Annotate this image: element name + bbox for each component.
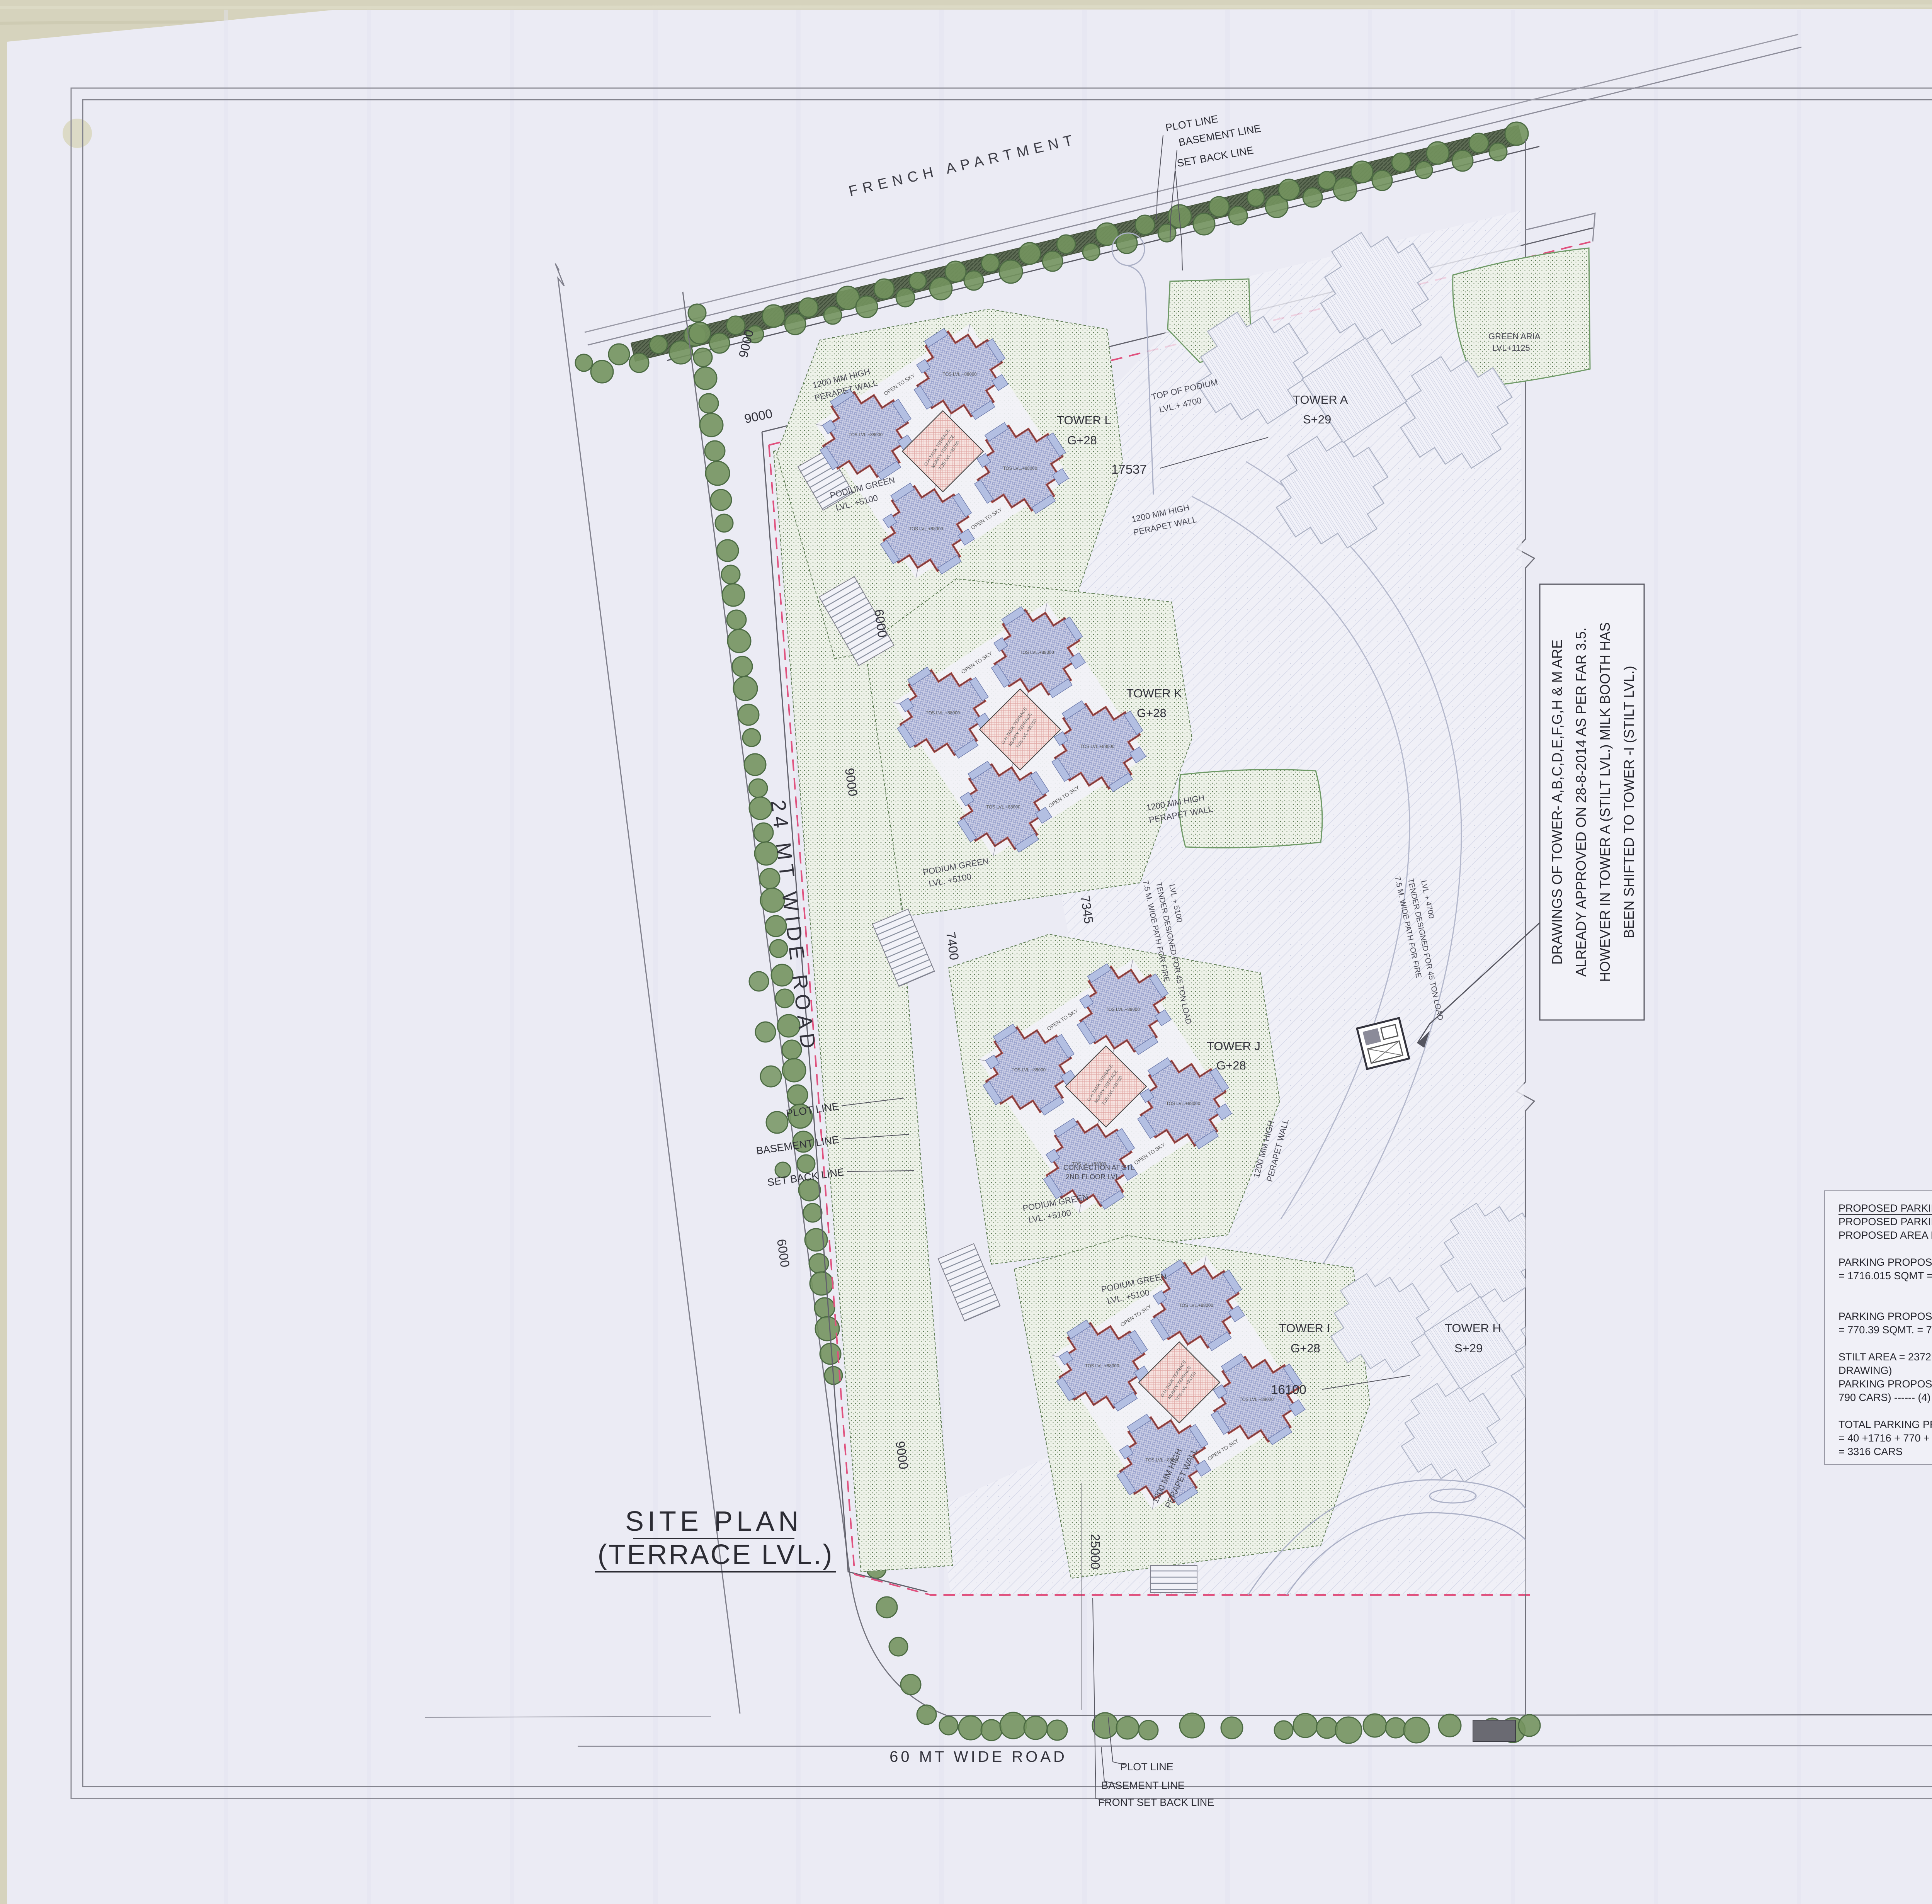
svg-text:TOS LVL.+88000: TOS LVL.+88000	[1080, 745, 1114, 749]
svg-text:ALREADY APPROVED ON 28-8-2014: ALREADY APPROVED ON 28-8-2014 AS PER FAR…	[1573, 627, 1589, 977]
svg-text:BEEN SHIFTED TO TOWER -I (STIL: BEEN SHIFTED TO TOWER -I (STILT LVL.)	[1621, 666, 1637, 938]
svg-text:PARKING PROPOSED IN SECON: PARKING PROPOSED IN SECOND BASEMENT = 23…	[1838, 1311, 1932, 1322]
svg-text:HOWEVER IN TOWER A (STILT LVL.: HOWEVER IN TOWER A (STILT LVL.) MILK BOO…	[1597, 622, 1613, 982]
svg-text:PROPOSED AREA FOR SURFACE PARK: PROPOSED AREA FOR SURFACE PARKING = 40 X…	[1838, 1229, 1932, 1241]
svg-text:PLOT LINE: PLOT LINE	[1120, 1761, 1173, 1773]
svg-text:PROPOSED PARKING AT SURFAC: PROPOSED PARKING AT SURFACE = 40 CARS --…	[1838, 1216, 1932, 1227]
svg-text:TOS LVL.+88000: TOS LVL.+88000	[1105, 1007, 1139, 1012]
svg-text:2ND FLOOR LVL.: 2ND FLOOR LVL.	[1066, 1173, 1121, 1181]
svg-text:S+29: S+29	[1454, 1341, 1483, 1355]
svg-text:PROPOSED PARKING:-: PROPOSED PARKING:-	[1838, 1202, 1932, 1214]
svg-text:SITE PLAN: SITE PLAN	[625, 1506, 802, 1537]
svg-text:25000: 25000	[1088, 1534, 1102, 1569]
svg-text:790 CARS) ------ (4): 790 CARS) ------ (4)	[1838, 1392, 1931, 1403]
svg-text:TOS LVL.+88000: TOS LVL.+88000	[926, 711, 960, 716]
svg-text:S+29: S+29	[1303, 413, 1331, 426]
svg-text:TOWER J: TOWER J	[1207, 1039, 1260, 1053]
svg-text:LVL+1125: LVL+1125	[1492, 343, 1530, 353]
svg-text:TOS LVL.+88000: TOS LVL.+88000	[942, 372, 976, 377]
svg-text:TOS LVL.+88000: TOS LVL.+88000	[909, 527, 943, 531]
svg-text:TOS LVL.+88000: TOS LVL.+88000	[1166, 1102, 1200, 1106]
svg-text:BASEMENT LINE: BASEMENT LINE	[1101, 1780, 1185, 1791]
svg-text:TOS LVL.+88000: TOS LVL.+88000	[1012, 1068, 1046, 1073]
svg-text:STILT AREA = 23721.412 SQM.: STILT AREA = 23721.412 SQM. REFER TOWER	[1838, 1351, 1932, 1363]
svg-text:TOS LVL.+88000: TOS LVL.+88000	[986, 805, 1020, 809]
svg-text:TOS LVL.+88000: TOS LVL.+88000	[1179, 1303, 1213, 1308]
svg-text:TOWER A: TOWER A	[1293, 393, 1348, 406]
svg-text:TOWER H: TOWER H	[1445, 1321, 1501, 1335]
svg-text:G+28: G+28	[1067, 433, 1097, 447]
svg-text:FRONT SET BACK LINE: FRONT SET BACK LINE	[1098, 1797, 1214, 1808]
svg-text:17537: 17537	[1111, 462, 1147, 476]
svg-text:TOWER I: TOWER I	[1279, 1321, 1330, 1335]
svg-text:CONNECTION AT STL: CONNECTION AT STL	[1063, 1164, 1134, 1171]
svg-text:DRAWINGS OF TOWER- A,B,C,D,E,F: DRAWINGS OF TOWER- A,B,C,D,E,F,G,H & M A…	[1549, 639, 1565, 964]
svg-text:G+28: G+28	[1291, 1341, 1320, 1355]
svg-text:TOS LVL.+88000: TOS LVL.+88000	[1240, 1397, 1274, 1402]
svg-text:TOWER L: TOWER L	[1057, 413, 1111, 427]
svg-text:TOS LVL.+88000: TOS LVL.+88000	[1085, 1364, 1119, 1368]
svg-text:(TERRACE LVL.): (TERRACE LVL.)	[598, 1539, 834, 1570]
svg-text:TOWER K: TOWER K	[1126, 687, 1182, 700]
svg-text:TOS LVL.+88000: TOS LVL.+88000	[1020, 650, 1054, 655]
svg-text:GREEN ARIA: GREEN ARIA	[1488, 331, 1541, 341]
svg-text:= 770.39 SQMT. = 770 (SAY): = 770.39 SQMT. = 770 (SAY) ECS ----(3)	[1838, 1324, 1932, 1336]
svg-text:= 3316 CARS: = 3316 CARS	[1838, 1446, 1903, 1457]
svg-text:G+28: G+28	[1216, 1059, 1246, 1072]
svg-text:16100: 16100	[1271, 1382, 1306, 1397]
svg-text:DRAWING): DRAWING)	[1838, 1365, 1892, 1376]
svg-text:TOTAL PARKING PROPOSED = (1)+: TOTAL PARKING PROPOSED = (1)+(2)+(3)+(4)	[1838, 1419, 1932, 1430]
svg-text:TOS LVL.+88000: TOS LVL.+88000	[849, 433, 883, 437]
svg-text:60 MT WIDE ROAD: 60 MT WIDE ROAD	[889, 1748, 1067, 1765]
svg-text:= 1716.015 SQMT = 1716 (SA: = 1716.015 SQMT = 1716 (SAY) ECS ------ …	[1838, 1270, 1932, 1282]
svg-text:TOS LVL.+88000: TOS LVL.+88000	[1003, 466, 1037, 471]
svg-text:PARKING PROPOSED IN FIRST: PARKING PROPOSED IN FIRST BASEMENT = 514…	[1838, 1256, 1932, 1268]
svg-text:= 40 +1716 + 770 + 790: = 40 +1716 + 770 + 790	[1838, 1432, 1932, 1444]
svg-text:G+28: G+28	[1137, 706, 1167, 720]
svg-text:PARKING PROPOSED IN STILT: PARKING PROPOSED IN STILT AREA = 23721.4…	[1838, 1378, 1932, 1390]
